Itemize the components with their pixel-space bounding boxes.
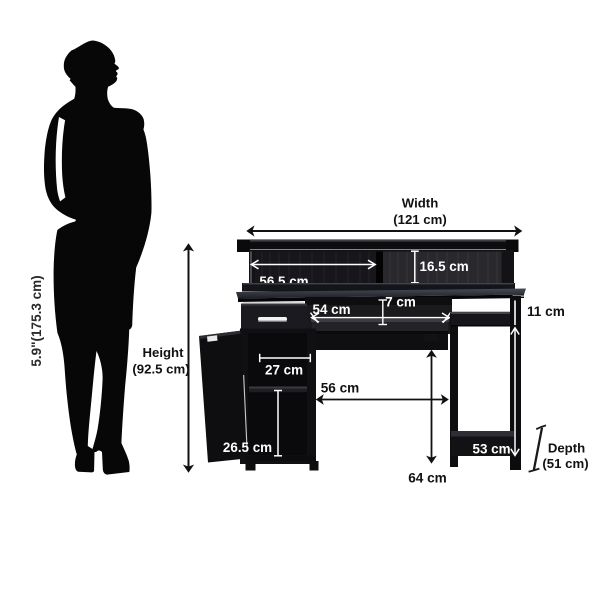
svg-text:7 cm: 7 cm <box>385 295 416 310</box>
svg-text:53 cm: 53 cm <box>473 442 511 457</box>
svg-text:54 cm: 54 cm <box>313 302 351 317</box>
svg-text:(92.5 cm): (92.5 cm) <box>132 362 189 377</box>
svg-text:56 cm: 56 cm <box>321 381 360 396</box>
svg-text:Depth: Depth <box>548 441 585 456</box>
svg-text:27 cm: 27 cm <box>265 363 303 378</box>
svg-text:16.5 cm: 16.5 cm <box>420 259 469 274</box>
svg-text:Height: Height <box>142 345 184 360</box>
svg-text:(121 cm): (121 cm) <box>393 212 447 227</box>
svg-text:(51 cm): (51 cm) <box>542 456 588 471</box>
svg-text:Width: Width <box>402 196 439 211</box>
svg-text:5.9"(175.3 cm): 5.9"(175.3 cm) <box>29 275 44 366</box>
svg-text:64 cm: 64 cm <box>408 471 447 486</box>
svg-text:11 cm: 11 cm <box>527 304 565 319</box>
svg-text:26.5 cm: 26.5 cm <box>223 440 272 455</box>
